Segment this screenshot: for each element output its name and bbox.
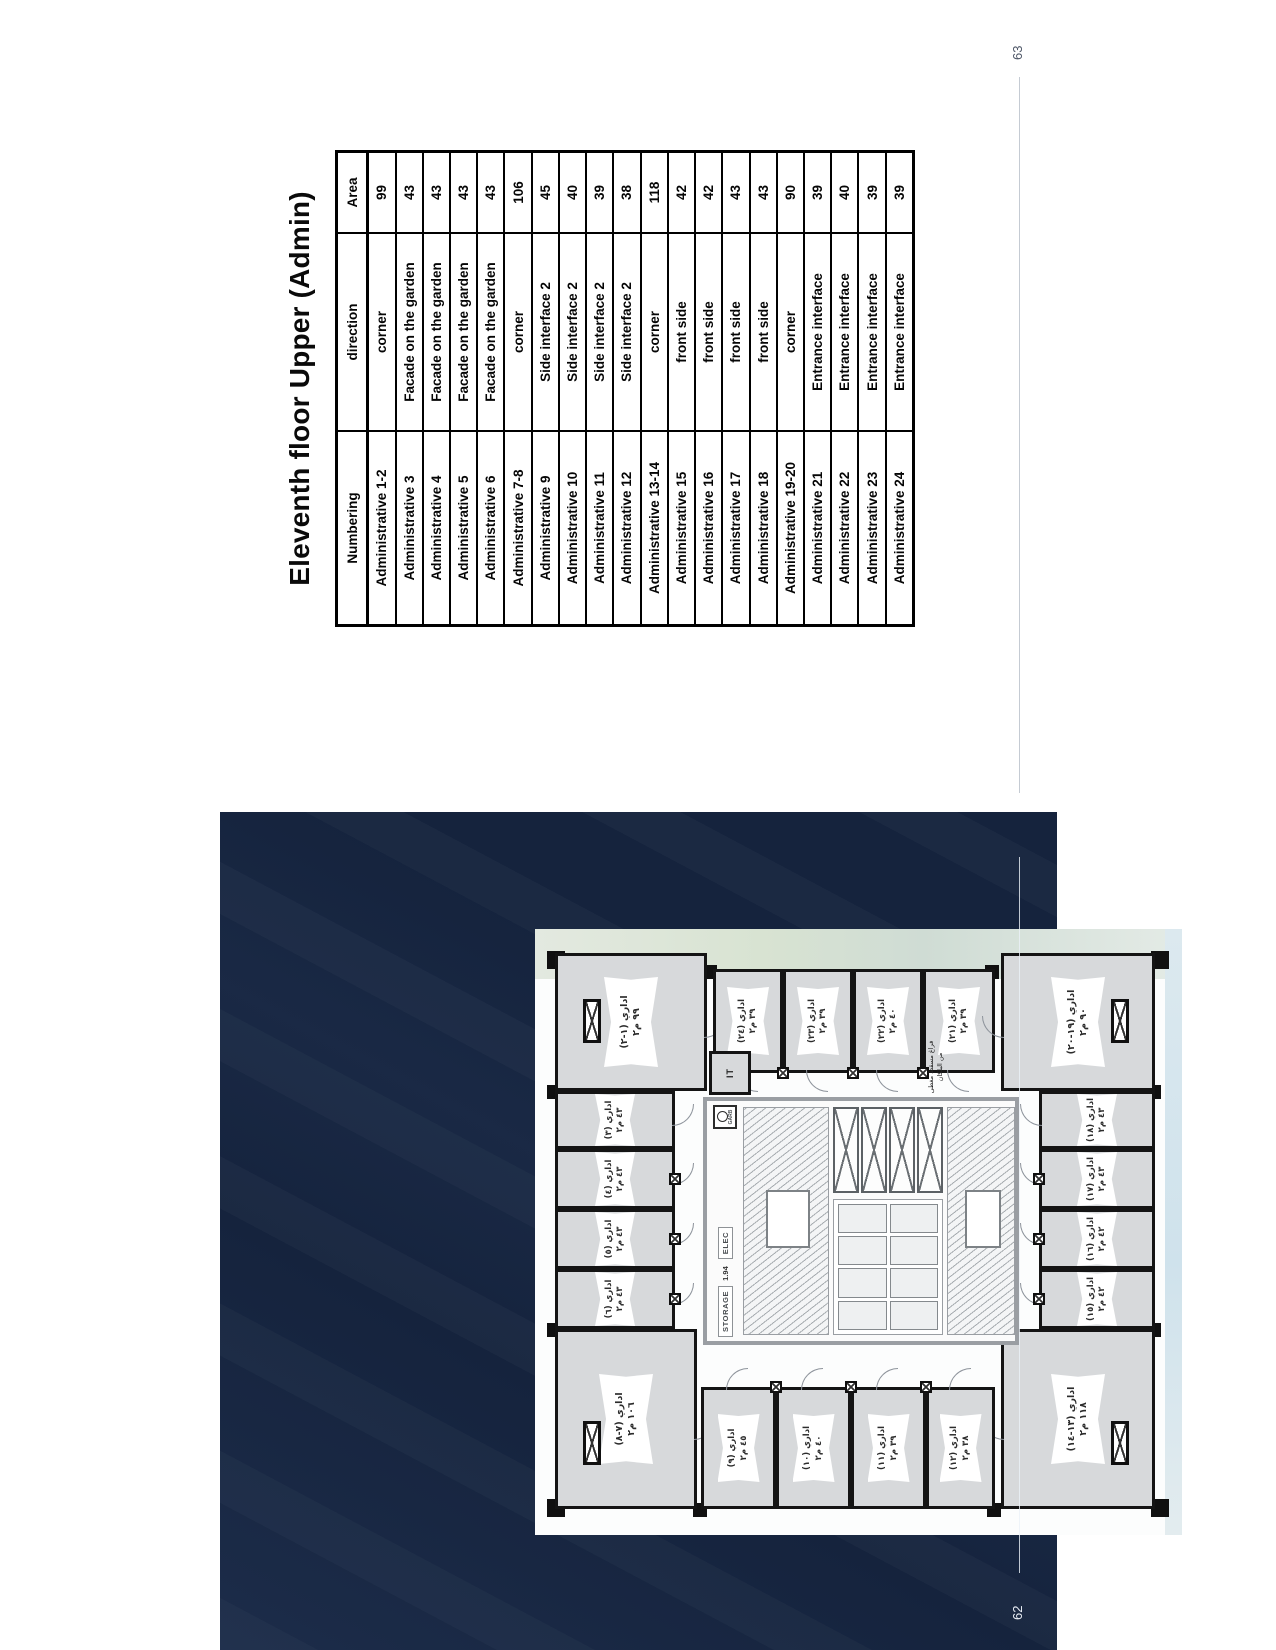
room-area: ١١٨ م٢ (1078, 1402, 1090, 1436)
room-label: اداري (٢١) (948, 999, 959, 1043)
unit-numbering-cell: Administrative 9 (533, 430, 558, 624)
photo-edge-band (1165, 929, 1182, 1535)
page-number-63: 63 (1010, 46, 1025, 60)
room-banner: اداري (١٢)٣٨ م٢ (940, 1414, 982, 1482)
room-admin-12: اداري (١٢)٣٨ م٢ (926, 1387, 995, 1509)
room-banner: اداري (٩)٤٥ م٢ (718, 1414, 760, 1482)
direction-cell: front side (723, 232, 748, 430)
x-box-icon (583, 1421, 601, 1465)
room-label: اداري (١٧) (1086, 1157, 1097, 1201)
room-admin-3: اداري (٣)٤٣ م٢ (555, 1091, 675, 1149)
room-admin-17: اداري (١٧)٤٣ م٢ (1039, 1149, 1155, 1209)
unit-numbering-cell: Administrative 13-14 (642, 430, 667, 624)
room-admin-10: اداري (١٠)٤٠ م٢ (776, 1387, 851, 1509)
core-mid-row (833, 1107, 943, 1335)
table-row: Administrative 22Entrance interface40 (832, 153, 859, 624)
area-cell: 118 (642, 153, 667, 232)
table-row: Administrative 1-2corner99 (369, 153, 396, 624)
area-cell: 39 (859, 153, 884, 232)
area-cell: 43 (751, 153, 776, 232)
unit-numbering-cell: Administrative 1-2 (369, 430, 394, 624)
table-row: Administrative 17front side43 (723, 153, 750, 624)
direction-cell: corner (369, 232, 394, 430)
direction-cell: Entrance interface (805, 232, 830, 430)
balcony-note: فراغ مسقط مغطى من البلكان (927, 1039, 945, 1095)
room-label: اداري (٣) (604, 1101, 615, 1140)
area-cell: 42 (669, 153, 694, 232)
direction-cell: corner (778, 232, 803, 430)
direction-cell: front side (669, 232, 694, 430)
room-admin-16: اداري (١٦)٤٢ م٢ (1039, 1209, 1155, 1269)
room-banner: اداري (٧-٨)١٠٦ م٢ (599, 1374, 653, 1464)
room-banner: اداري (٤)٤٣ م٢ (595, 1152, 635, 1206)
area-cell: 39 (805, 153, 830, 232)
area-cell: 38 (614, 153, 639, 232)
room-label: اداري (١٥) (1086, 1277, 1097, 1321)
room-admin-13-14: اداري (١٣-١٤)١١٨ م٢ (1001, 1329, 1155, 1509)
room-banner: اداري (٢٣)٣٩ م٢ (797, 987, 839, 1055)
toilets-block (833, 1199, 943, 1335)
units-table: Numbering direction Area Administrative … (335, 150, 915, 627)
room-label: اداري (١-٢) (619, 995, 631, 1048)
x-box-icon (1111, 1421, 1129, 1465)
door-swing-icon (947, 1070, 969, 1092)
unit-numbering-cell: Administrative 10 (560, 430, 585, 624)
room-admin-15: اداري (١٥)٤٢ م٢ (1039, 1269, 1155, 1329)
room-banner: اداري (١٩-٢٠)٩٠ م٢ (1051, 977, 1105, 1067)
wc-stall (890, 1204, 939, 1233)
room-label: اداري (٢٣) (807, 999, 818, 1043)
room-area: ٤٣ م٢ (615, 1167, 626, 1192)
direction-cell: Facade on the garden (478, 232, 503, 430)
table-row: Administrative 9Side interface 245 (533, 153, 560, 624)
unit-numbering-cell: Administrative 19-20 (778, 430, 803, 624)
direction-cell: Facade on the garden (424, 232, 449, 430)
elevator-shaft-icon (861, 1107, 887, 1193)
wc-stall (838, 1269, 887, 1298)
room-banner: اداري (٥)٤٣ م٢ (595, 1212, 635, 1266)
table-header-row: Numbering direction Area (338, 153, 369, 624)
room-banner: اداري (٦)٤٣ م٢ (595, 1272, 635, 1326)
room-admin-11: اداري (١١)٣٩ م٢ (851, 1387, 926, 1509)
wc-stall (890, 1236, 939, 1265)
area-cell: 45 (533, 153, 558, 232)
table-row: Administrative 21Entrance interface39 (805, 153, 832, 624)
direction-cell: Side interface 2 (587, 232, 612, 430)
garb-label: GARB (728, 1110, 734, 1125)
area-cell: 106 (505, 153, 530, 232)
area-cell: 40 (560, 153, 585, 232)
room-area: ٣٨ م٢ (961, 1436, 972, 1461)
room-label: اداري (٢٢) (877, 999, 888, 1043)
room-label: اداري (١٦) (1086, 1217, 1097, 1261)
room-area: ٣٩ م٢ (959, 1009, 970, 1034)
room-admin-19-20: اداري (١٩-٢٠)٩٠ م٢ (1001, 953, 1155, 1091)
unit-numbering-cell: Administrative 3 (397, 430, 422, 624)
room-label: اداري (١١) (877, 1426, 888, 1470)
door-swing-icon (1020, 1104, 1042, 1126)
area-cell: 90 (778, 153, 803, 232)
room-label: اداري (٦) (604, 1280, 615, 1319)
table-row: Administrative 11Side interface 239 (587, 153, 614, 624)
elevator-bank (833, 1107, 943, 1193)
x-marker-icon (669, 1293, 681, 1305)
plan-page-panel: اداري (٧-٨)١٠٦ م٢اداري (٦)٤٣ م٢اداري (٥)… (220, 812, 1057, 1650)
room-area: ٤٣ م٢ (1097, 1108, 1108, 1133)
core-top-strip: STORAGE 1.94 ELEC GARB (710, 1105, 740, 1337)
table-row: Administrative 12Side interface 238 (614, 153, 641, 624)
room-banner: اداري (١١)٣٩ م٢ (868, 1414, 910, 1482)
room-admin-7-8: اداري (٧-٨)١٠٦ م٢ (555, 1329, 697, 1509)
room-area: ٤٣ م٢ (1097, 1167, 1108, 1192)
wc-stall (890, 1269, 939, 1298)
stair-landing (965, 1190, 1001, 1248)
column-header-area: Area (338, 153, 366, 232)
direction-cell: Entrance interface (887, 232, 912, 430)
stair-landing (766, 1190, 810, 1248)
room-banner: اداري (١٨)٤٣ م٢ (1077, 1094, 1117, 1146)
room-label: اداري (١٨) (1086, 1098, 1097, 1142)
door-swing-icon (672, 1104, 694, 1126)
direction-cell: front side (751, 232, 776, 430)
room-banner: اداري (١٦)٤٢ م٢ (1077, 1212, 1117, 1266)
direction-cell: Entrance interface (859, 232, 884, 430)
x-marker-icon (777, 1067, 789, 1079)
room-banner: اداري (١٣-١٤)١١٨ م٢ (1051, 1374, 1105, 1464)
room-banner: اداري (١-٢)٩٩ م٢ (604, 977, 658, 1067)
table-row: Administrative 5Facade on the garden43 (451, 153, 478, 624)
room-label: اداري (٢٤) (737, 999, 748, 1043)
unit-numbering-cell: Administrative 18 (751, 430, 776, 624)
room-area: ٤٢ م٢ (1097, 1227, 1108, 1252)
room-banner: اداري (٢٤)٣٩ م٢ (727, 987, 769, 1055)
room-area: ٤٠ م٢ (814, 1436, 825, 1461)
floor-plan-image: اداري (٧-٨)١٠٦ م٢اداري (٦)٤٣ م٢اداري (٥)… (535, 929, 1182, 1535)
room-area: ١٠٦ م٢ (626, 1402, 638, 1436)
table-row: Administrative 7-8corner106 (505, 153, 532, 624)
rotated-book-spread: Eleventh floor Upper (Admin) Numbering d… (0, 0, 1276, 1650)
room-admin-4: اداري (٤)٤٣ م٢ (555, 1149, 675, 1209)
area-cell: 43 (424, 153, 449, 232)
x-marker-icon (669, 1173, 681, 1185)
table-row: Administrative 19-20corner90 (778, 153, 805, 624)
direction-cell: Facade on the garden (397, 232, 422, 430)
room-area: ٣٩ م٢ (889, 1436, 900, 1461)
room-banner: اداري (٣)٤٣ م٢ (595, 1094, 635, 1146)
unit-numbering-cell: Administrative 7-8 (505, 430, 530, 624)
unit-numbering-cell: Administrative 24 (887, 430, 912, 624)
direction-cell: Entrance interface (832, 232, 857, 430)
door-swing-icon (949, 1368, 971, 1390)
room-area: ٩٠ م٢ (1078, 1008, 1090, 1036)
stairwell-a (743, 1107, 829, 1335)
table-row: Administrative 15front side42 (669, 153, 696, 624)
page-title: Eleventh floor Upper (Admin) (284, 150, 316, 627)
area-cell: 40 (832, 153, 857, 232)
level-marker: 1.94 (721, 1266, 730, 1281)
room-area: ٣٩ م٢ (818, 1009, 829, 1034)
unit-numbering-cell: Administrative 23 (859, 430, 884, 624)
wc-stall (838, 1301, 887, 1330)
room-label: اداري (١٢) (949, 1426, 960, 1470)
room-admin-23: اداري (٢٣)٣٩ م٢ (783, 969, 853, 1073)
x-marker-icon (1033, 1233, 1045, 1245)
area-cell: 43 (723, 153, 748, 232)
door-swing-icon (806, 1070, 828, 1092)
room-area: ٤٢ م٢ (1097, 1287, 1108, 1312)
area-cell: 39 (887, 153, 912, 232)
room-area: ٣٩ م٢ (748, 1009, 759, 1034)
direction-cell: front side (696, 232, 721, 430)
stairwell-b (947, 1107, 1015, 1335)
room-area: ٤٣ م٢ (615, 1227, 626, 1252)
elec-label: ELEC (718, 1227, 733, 1259)
area-cell: 99 (369, 153, 394, 232)
unit-numbering-cell: Administrative 22 (832, 430, 857, 624)
page-number-62: 62 (1010, 1606, 1025, 1620)
room-area: ٤٠ م٢ (888, 1009, 899, 1034)
room-label: اداري (١٩-٢٠) (1066, 990, 1078, 1055)
area-cell: 39 (587, 153, 612, 232)
table-row: Administrative 4Facade on the garden43 (424, 153, 451, 624)
room-admin-5: اداري (٥)٤٣ م٢ (555, 1209, 675, 1269)
direction-cell: Facade on the garden (451, 232, 476, 430)
room-banner: اداري (١٥)٤٢ م٢ (1077, 1272, 1117, 1326)
footer-rule-left-page (1019, 857, 1020, 1573)
area-cell: 43 (451, 153, 476, 232)
room-label: اداري (٥) (604, 1220, 615, 1259)
elevator-shaft-icon (889, 1107, 915, 1193)
room-area: ٤٣ م٢ (615, 1108, 626, 1133)
area-cell: 42 (696, 153, 721, 232)
unit-numbering-cell: Administrative 16 (696, 430, 721, 624)
x-marker-icon (920, 1381, 932, 1393)
area-cell: 43 (478, 153, 503, 232)
unit-numbering-cell: Administrative 12 (614, 430, 639, 624)
table-row: Administrative 10Side interface 240 (560, 153, 587, 624)
footer-rule-right-page (1019, 77, 1020, 793)
room-area: ٩٩ م٢ (631, 1008, 643, 1036)
x-marker-icon (1033, 1293, 1045, 1305)
wc-stall (838, 1236, 887, 1265)
it-room: IT (709, 1051, 751, 1095)
unit-numbering-cell: Administrative 5 (451, 430, 476, 624)
door-swing-icon (876, 1368, 898, 1390)
direction-cell: corner (642, 232, 667, 430)
unit-numbering-cell: Administrative 4 (424, 430, 449, 624)
room-area: ٤٥ م٢ (739, 1436, 750, 1461)
unit-numbering-cell: Administrative 15 (669, 430, 694, 624)
wc-stall (890, 1301, 939, 1330)
room-banner: اداري (١٠)٤٠ م٢ (793, 1414, 835, 1482)
storage-label: STORAGE (718, 1286, 733, 1337)
room-label: اداري (١٠) (802, 1426, 813, 1470)
table-row: Administrative 24Entrance interface39 (887, 153, 912, 624)
direction-cell: Side interface 2 (533, 232, 558, 430)
x-marker-icon (770, 1381, 782, 1393)
x-marker-icon (669, 1233, 681, 1245)
unit-numbering-cell: Administrative 17 (723, 430, 748, 624)
table-row: Administrative 6Facade on the garden43 (478, 153, 505, 624)
x-box-icon (1111, 999, 1129, 1043)
table-row: Administrative 23Entrance interface39 (859, 153, 886, 624)
room-label: اداري (٧-٨) (614, 1392, 626, 1445)
wc-stall (838, 1204, 887, 1233)
room-admin-9: اداري (٩)٤٥ م٢ (701, 1387, 776, 1509)
room-label: اداري (٩) (727, 1429, 738, 1468)
column-header-direction: direction (338, 232, 366, 430)
garbage-chute-icon: GARB (713, 1105, 737, 1129)
room-label: اداري (٤) (604, 1160, 615, 1199)
x-marker-icon (1033, 1173, 1045, 1185)
elevator-shaft-icon (833, 1107, 859, 1193)
room-admin-18: اداري (١٨)٤٣ م٢ (1039, 1091, 1155, 1149)
door-swing-icon (801, 1368, 823, 1390)
room-admin-6: اداري (٦)٤٣ م٢ (555, 1269, 675, 1329)
elevator-shaft-icon (917, 1107, 943, 1193)
column-header-numbering: Numbering (338, 430, 366, 624)
room-label: اداري (١٣-١٤) (1066, 1387, 1078, 1452)
room-admin-22: اداري (٢٢)٤٠ م٢ (853, 969, 923, 1073)
unit-numbering-cell: Administrative 6 (478, 430, 503, 624)
room-area: ٤٣ م٢ (615, 1287, 626, 1312)
door-swing-icon (726, 1368, 748, 1390)
room-banner: اداري (٢٢)٤٠ م٢ (867, 987, 909, 1055)
table-row: Administrative 13-14corner118 (642, 153, 669, 624)
table-row: Administrative 16front side42 (696, 153, 723, 624)
unit-numbering-cell: Administrative 21 (805, 430, 830, 624)
x-box-icon (583, 999, 601, 1043)
door-swing-icon (876, 1070, 898, 1092)
room-banner: اداري (١٧)٤٣ م٢ (1077, 1152, 1117, 1206)
direction-cell: Side interface 2 (560, 232, 585, 430)
unit-numbering-cell: Administrative 11 (587, 430, 612, 624)
service-core: STORAGE 1.94 ELEC GARB (703, 1097, 1019, 1345)
area-cell: 43 (397, 153, 422, 232)
x-marker-icon (845, 1381, 857, 1393)
table-row: Administrative 18front side43 (751, 153, 778, 624)
direction-cell: Side interface 2 (614, 232, 639, 430)
room-admin-1-2: اداري (١-٢)٩٩ م٢ (555, 953, 707, 1091)
x-marker-icon (847, 1067, 859, 1079)
chute-circle-icon (717, 1112, 728, 1123)
direction-cell: corner (505, 232, 530, 430)
table-row: Administrative 3Facade on the garden43 (397, 153, 424, 624)
